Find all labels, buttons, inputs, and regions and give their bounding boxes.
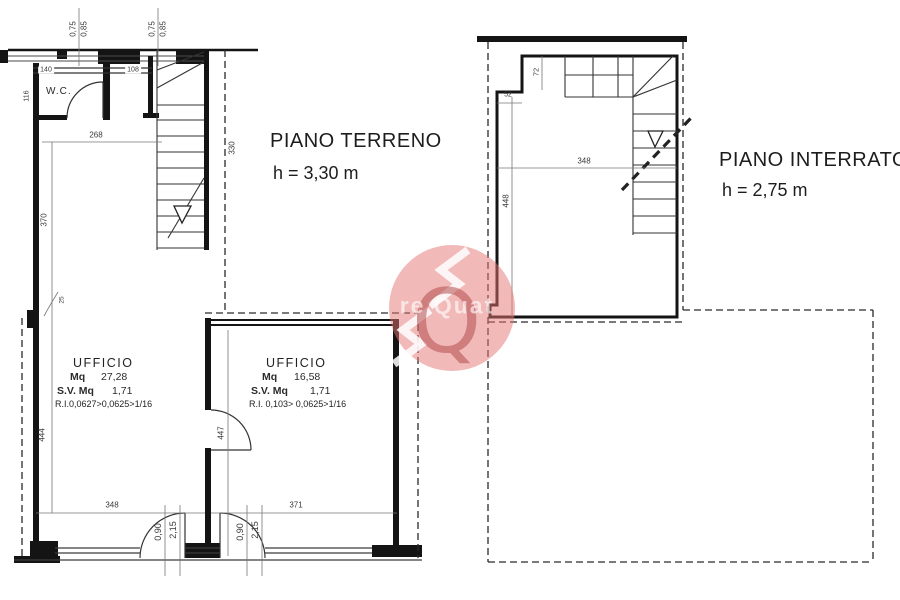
office-right-mq-label: Mq — [262, 371, 277, 383]
interrato-dimension-lines — [497, 56, 677, 317]
terreno-stair-direction-arrow — [168, 178, 204, 238]
wc-room-label: W.C. — [46, 86, 72, 97]
office-right-sv-label: S.V. Mq — [251, 385, 288, 397]
interrato-height-label: h = 2,75 m — [722, 180, 808, 201]
dim-370: 370 — [40, 213, 49, 226]
office-left-mq-label: Mq — [70, 371, 85, 383]
dim-72: 72 — [532, 68, 541, 76]
office-right-mq-value: 16,58 — [294, 371, 320, 383]
dim-447: 447 — [217, 426, 226, 439]
watermark-text: re Quat — [400, 293, 495, 320]
interrato-title: PIANO INTERRATO — [719, 149, 900, 172]
dim-window1-b: 0,85 — [80, 21, 89, 37]
dim-25: 25 — [59, 296, 66, 303]
dim-116: 116 — [24, 90, 31, 101]
dim-371: 371 — [289, 501, 302, 510]
office-left-sv-label: S.V. Mq — [57, 385, 94, 397]
interrato-walls — [490, 56, 677, 317]
office-right-sv-value: 1,71 — [310, 385, 330, 397]
watermark-monogram: Q — [412, 270, 481, 373]
dim-door2-height: 2,15 — [250, 521, 260, 539]
office-left-mq-value: 27,28 — [101, 371, 127, 383]
dim-448: 448 — [502, 194, 511, 207]
office-left-name: UFFICIO — [73, 356, 134, 370]
terreno-interior-walls — [14, 50, 422, 563]
dim-140: 140 — [38, 67, 54, 74]
dim-door1-height: 2,15 — [168, 521, 178, 539]
dim-door1-width: 0,90 — [153, 523, 163, 541]
interrato-staircase — [565, 56, 677, 235]
dim-348-interrato: 348 — [575, 157, 592, 166]
terreno-dashed-boundary — [22, 50, 418, 558]
terreno-exterior-walls — [0, 50, 258, 64]
dim-330: 330 — [228, 141, 237, 154]
dim-window2-b: 0,85 — [159, 21, 168, 37]
office-right-ri-line: R.I. 0,103> 0,0625>1/16 — [249, 399, 346, 409]
dim-348-terreno: 348 — [105, 501, 118, 510]
dim-108: 108 — [125, 67, 141, 74]
dim-444: 444 — [38, 428, 47, 441]
dim-window1-a: 0,75 — [69, 21, 78, 37]
interrato-dashed-boundary — [488, 42, 873, 562]
terreno-dimension-lines — [36, 8, 397, 576]
dim-window2-a: 0,75 — [148, 21, 157, 37]
dim-268: 268 — [89, 131, 102, 140]
terreno-height-label: h = 3,30 m — [273, 163, 359, 184]
terreno-title: PIANO TERRENO — [270, 130, 442, 153]
floorplan-page: Q PIANO TERRENO h = 3,30 m PIANO INTERRA… — [0, 0, 900, 600]
office-right-name: UFFICIO — [266, 356, 327, 370]
interrato-top-bar — [477, 36, 687, 42]
terreno-office-top-wall — [205, 320, 399, 325]
office-left-sv-value: 1,71 — [112, 385, 132, 397]
office-left-ri-line: R.I.0,0627>0,0625>1/16 — [55, 399, 152, 409]
dim-door2-width: 0,90 — [235, 523, 245, 541]
dim-52: 52 — [504, 92, 512, 99]
